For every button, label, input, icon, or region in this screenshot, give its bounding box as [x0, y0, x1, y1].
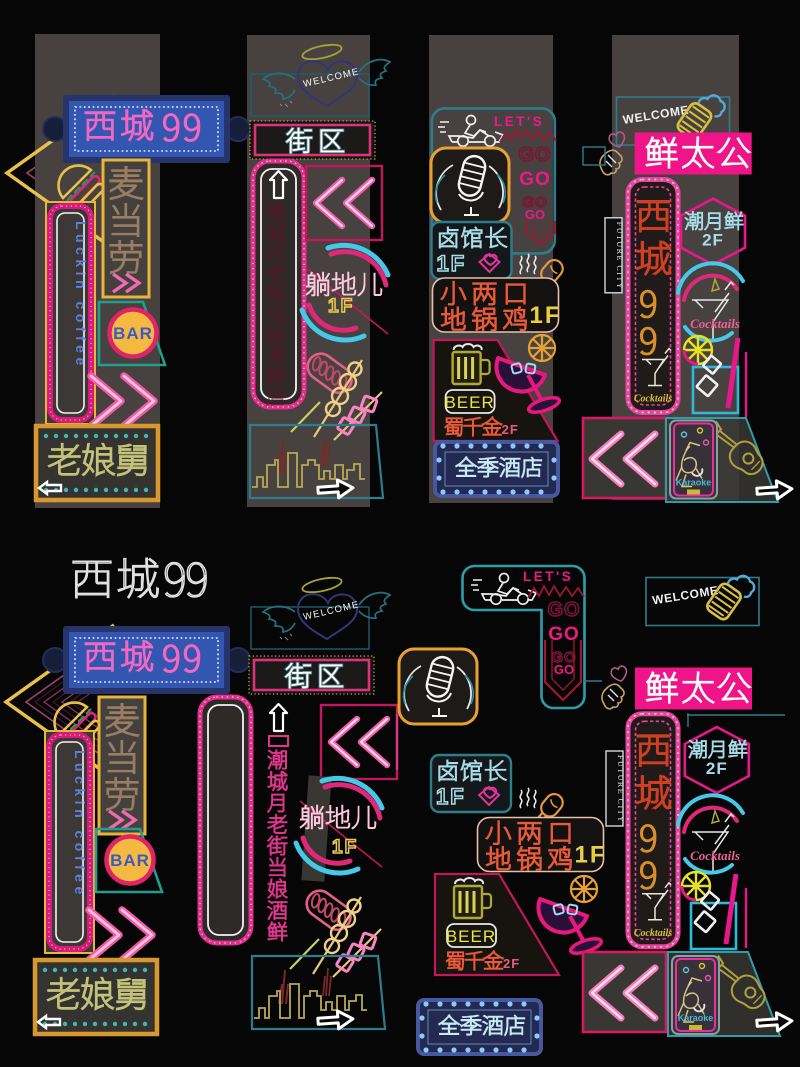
svg-text:LET'S: LET'S [523, 569, 573, 584]
svg-text:LET'S: LET'S [494, 114, 544, 129]
